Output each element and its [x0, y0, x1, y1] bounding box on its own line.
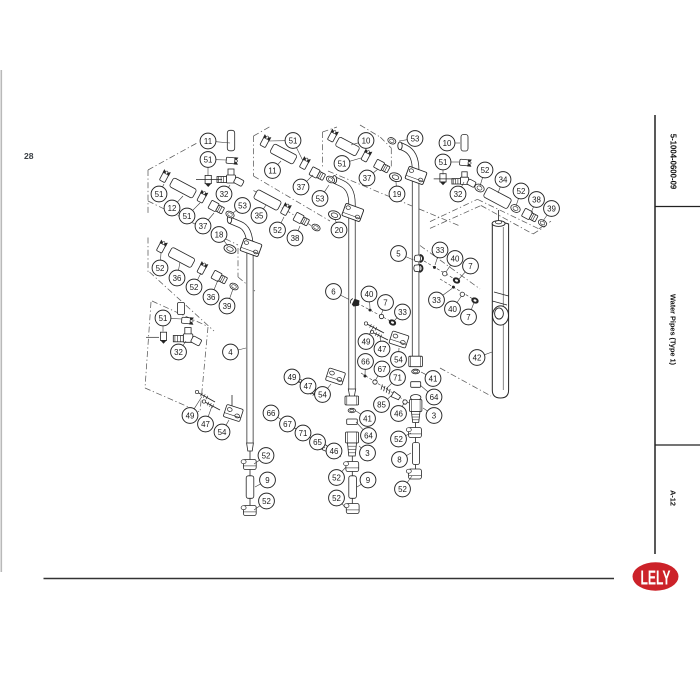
svg-text:51: 51 — [204, 156, 213, 165]
svg-text:52: 52 — [273, 226, 282, 235]
svg-text:52: 52 — [262, 497, 271, 506]
svg-text:11: 11 — [268, 167, 276, 176]
svg-text:7: 7 — [468, 262, 472, 271]
svg-text:51: 51 — [439, 158, 448, 167]
svg-text:49: 49 — [186, 412, 195, 421]
svg-text:47: 47 — [201, 420, 210, 429]
svg-text:Water Pipes (Type 1): Water Pipes (Type 1) — [669, 294, 678, 366]
svg-text:33: 33 — [432, 296, 441, 305]
svg-text:51: 51 — [183, 212, 192, 221]
svg-text:47: 47 — [378, 345, 387, 354]
svg-text:52: 52 — [398, 485, 407, 494]
svg-text:38: 38 — [291, 234, 300, 243]
svg-text:10: 10 — [443, 139, 452, 148]
svg-text:46: 46 — [330, 447, 339, 456]
svg-text:12: 12 — [168, 204, 177, 213]
svg-text:49: 49 — [288, 373, 297, 382]
svg-text:41: 41 — [363, 415, 372, 424]
svg-text:49: 49 — [362, 338, 371, 347]
svg-text:52: 52 — [190, 283, 199, 292]
svg-text:71: 71 — [299, 429, 308, 438]
svg-text:3: 3 — [365, 449, 370, 458]
svg-text:67: 67 — [378, 365, 387, 374]
svg-text:85: 85 — [377, 401, 386, 410]
svg-text:7: 7 — [466, 313, 470, 322]
svg-text:35: 35 — [255, 212, 264, 221]
svg-text:54: 54 — [218, 428, 227, 437]
svg-text:5: 5 — [396, 250, 401, 259]
svg-text:65: 65 — [313, 438, 322, 447]
svg-text:54: 54 — [394, 356, 403, 365]
svg-text:6: 6 — [331, 288, 336, 297]
svg-text:51: 51 — [159, 314, 168, 323]
svg-text:39: 39 — [547, 205, 556, 214]
svg-text:52: 52 — [517, 187, 526, 196]
svg-text:36: 36 — [207, 293, 216, 302]
svg-text:53: 53 — [411, 135, 420, 144]
svg-text:40: 40 — [448, 305, 457, 314]
svg-text:4: 4 — [228, 348, 233, 357]
svg-text:52: 52 — [394, 435, 403, 444]
svg-text:52: 52 — [481, 166, 490, 175]
svg-text:A-12: A-12 — [669, 490, 678, 506]
svg-text:52: 52 — [156, 264, 165, 273]
svg-text:41: 41 — [429, 375, 438, 384]
svg-text:9: 9 — [265, 476, 270, 485]
svg-text:46: 46 — [394, 410, 403, 419]
svg-text:39: 39 — [223, 302, 232, 311]
svg-text:52: 52 — [332, 494, 341, 503]
svg-text:LELY: LELY — [641, 566, 671, 589]
svg-text:52: 52 — [332, 474, 341, 483]
svg-text:66: 66 — [267, 409, 276, 418]
svg-text:20: 20 — [335, 226, 344, 235]
svg-text:40: 40 — [451, 255, 460, 264]
svg-text:28: 28 — [24, 151, 34, 161]
svg-text:47: 47 — [304, 382, 313, 391]
svg-text:8: 8 — [397, 456, 402, 465]
svg-text:51: 51 — [289, 137, 298, 146]
svg-text:37: 37 — [199, 222, 208, 231]
svg-text:19: 19 — [393, 190, 402, 199]
svg-text:51: 51 — [338, 160, 347, 169]
svg-text:34: 34 — [499, 176, 508, 185]
svg-text:53: 53 — [238, 202, 247, 211]
svg-text:53: 53 — [316, 195, 325, 204]
svg-text:33: 33 — [398, 308, 407, 317]
svg-text:7: 7 — [383, 299, 387, 308]
svg-text:5-1004-0600-09: 5-1004-0600-09 — [669, 134, 678, 190]
svg-text:3: 3 — [432, 412, 437, 421]
svg-text:37: 37 — [297, 183, 306, 192]
svg-text:54: 54 — [318, 391, 327, 400]
svg-text:33: 33 — [436, 246, 445, 255]
svg-text:32: 32 — [220, 190, 229, 199]
svg-text:66: 66 — [361, 358, 370, 367]
svg-text:40: 40 — [365, 290, 374, 299]
svg-text:38: 38 — [532, 196, 541, 205]
svg-text:9: 9 — [366, 476, 371, 485]
svg-text:52: 52 — [262, 452, 271, 461]
svg-text:10: 10 — [362, 137, 371, 146]
svg-text:64: 64 — [430, 393, 439, 402]
svg-text:36: 36 — [173, 274, 182, 283]
svg-text:51: 51 — [155, 190, 164, 199]
svg-text:71: 71 — [393, 374, 402, 383]
svg-text:64: 64 — [364, 432, 373, 441]
svg-text:11: 11 — [204, 137, 212, 146]
svg-text:67: 67 — [283, 420, 292, 429]
svg-text:42: 42 — [473, 354, 482, 363]
svg-text:18: 18 — [215, 231, 224, 240]
svg-text:32: 32 — [454, 190, 463, 199]
svg-text:32: 32 — [174, 348, 183, 357]
svg-text:37: 37 — [363, 174, 372, 183]
